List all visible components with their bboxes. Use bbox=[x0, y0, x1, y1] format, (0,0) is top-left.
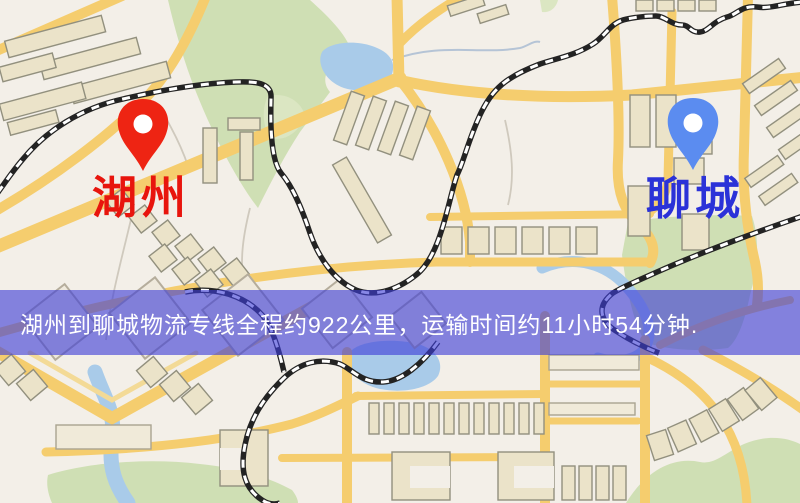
map-canvas[interactable]: 湖州 聊城 湖州到聊城物流专线全程约922公里，运输时间约11小时54分钟. bbox=[0, 0, 800, 503]
origin-pin-icon[interactable] bbox=[118, 99, 169, 171]
destination-label: 聊城 bbox=[646, 176, 744, 221]
route-info-text: 湖州到聊城物流专线全程约922公里，运输时间约11小时54分钟. bbox=[0, 306, 698, 340]
route-info-banner: 湖州到聊城物流专线全程约922公里，运输时间约11小时54分钟. bbox=[0, 290, 800, 355]
map-artwork bbox=[0, 0, 800, 503]
origin-label: 湖州 bbox=[92, 175, 190, 220]
